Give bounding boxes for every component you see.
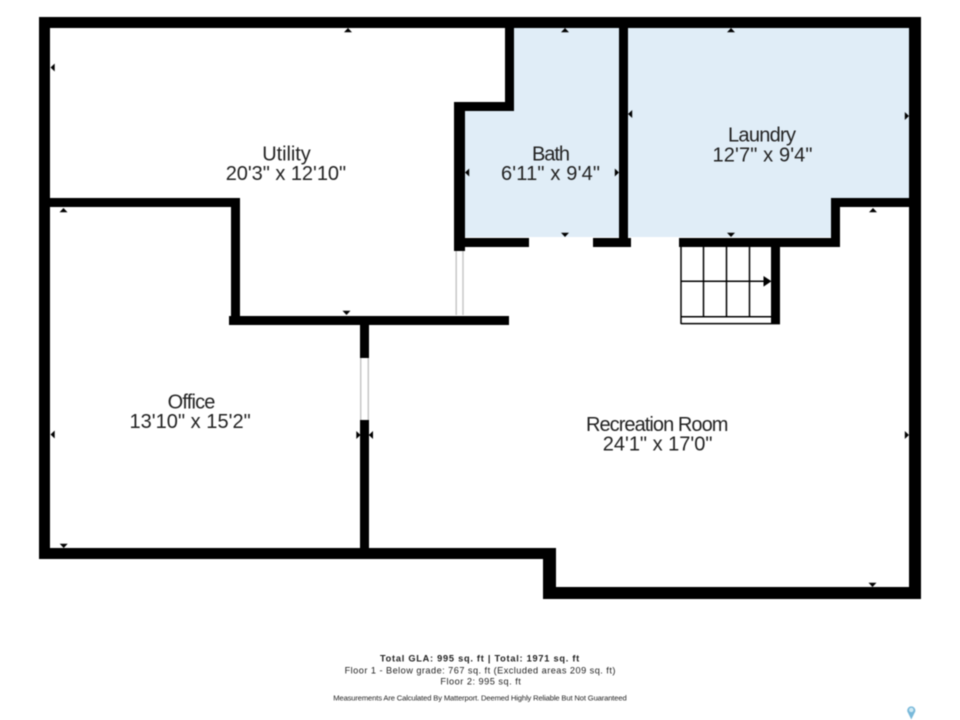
svg-text:Laundry: Laundry: [728, 124, 796, 146]
svg-text:12'7" x 9'4": 12'7" x 9'4": [713, 144, 813, 166]
svg-text:6'11" x 9'4": 6'11" x 9'4": [501, 163, 600, 185]
svg-text:Measurements Are Calculated By: Measurements Are Calculated By Matterpor…: [333, 693, 626, 702]
svg-text:13'10" x 15'2": 13'10" x 15'2": [129, 411, 250, 433]
svg-text:Floor 1 - Below grade: 767 sq.: Floor 1 - Below grade: 767 sq. ft (Exclu…: [345, 665, 616, 675]
svg-text:Recreation Room: Recreation Room: [586, 414, 729, 436]
svg-text:Bath: Bath: [532, 143, 570, 165]
svg-text:Floor 2: 995 sq. ft: Floor 2: 995 sq. ft: [440, 677, 521, 687]
svg-text:20'3" x 12'10": 20'3" x 12'10": [226, 163, 346, 185]
svg-text:Office: Office: [168, 391, 216, 413]
svg-text:24'1" x 17'0": 24'1" x 17'0": [603, 434, 713, 456]
svg-text:Total GLA: 995 sq. ft | Total:: Total GLA: 995 sq. ft | Total: 1971 sq. …: [380, 654, 579, 664]
